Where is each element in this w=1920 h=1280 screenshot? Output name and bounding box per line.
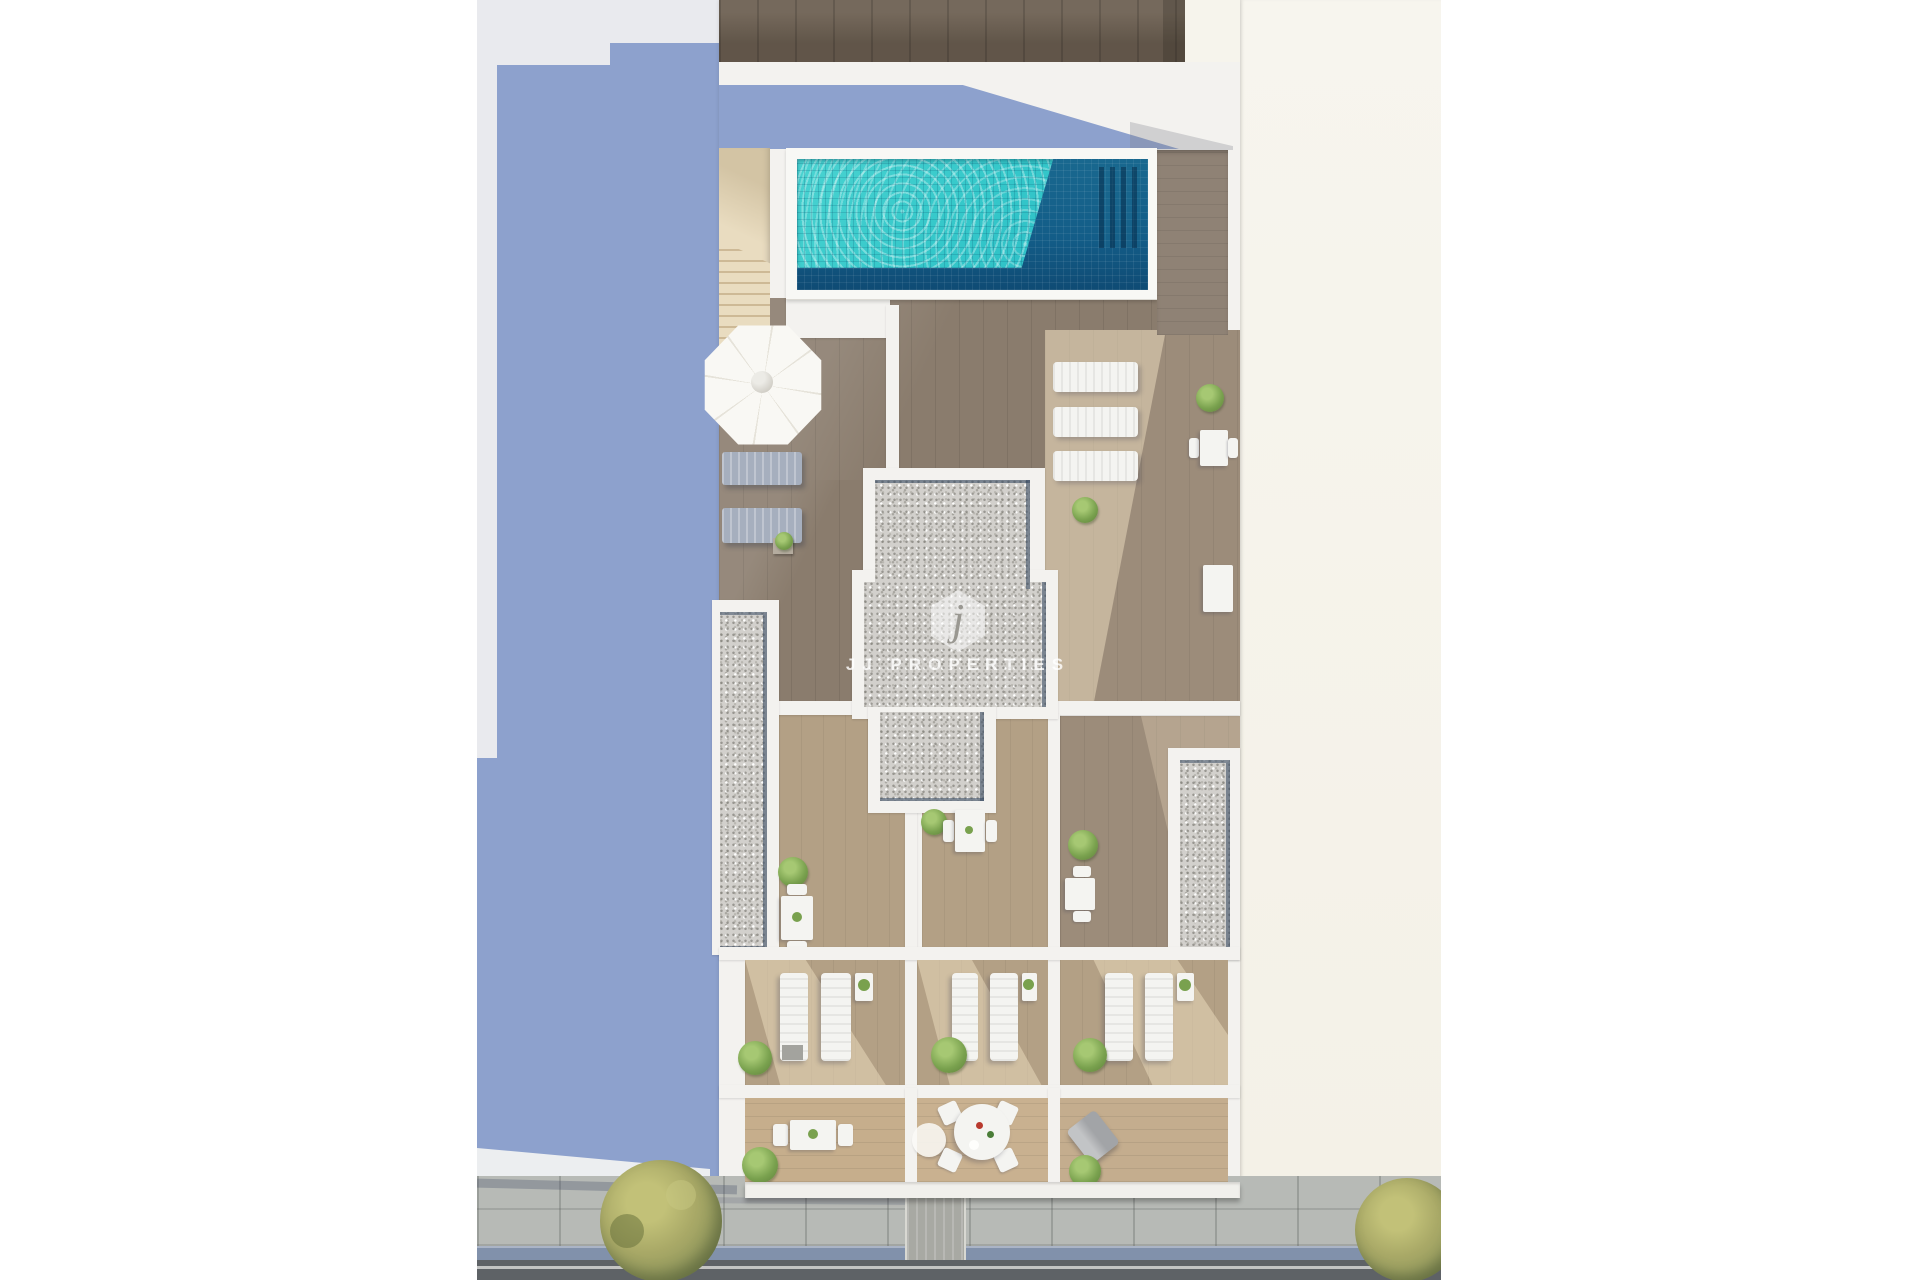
table-plant [858,979,870,991]
table-plant [987,1131,994,1138]
building-shadow [477,758,719,1180]
shrub [778,857,808,887]
table-plant [1023,979,1034,990]
shrub [738,1041,772,1075]
round-rug [912,1123,946,1157]
patio-chair [1189,438,1199,458]
shrub [775,532,793,550]
patio-chair [1073,866,1091,877]
watermark-title: JJ PROPERTIES [808,655,1108,675]
round-table [954,1104,1010,1160]
shrub [1196,384,1224,412]
top-edge-cream [1185,0,1240,62]
sun-lounger-white [1105,973,1133,1061]
roof-core-gravel [875,480,1030,589]
patio-table [1200,430,1228,466]
sun-lounger-white [990,973,1018,1061]
render-canvas: j JJ PROPERTIES REAL ESTATE [0,0,1920,1280]
pool-side-deck [1157,150,1228,335]
patio-chair [943,820,954,842]
glass-parapet-edge [875,480,1030,483]
sun-lounger-white [821,973,851,1061]
divider-wall [1048,1088,1060,1184]
shrub [1068,830,1098,860]
glass-parapet-edge [880,798,984,801]
parasol-pole [751,371,773,393]
shrub [931,1037,967,1073]
tree-foliage-clump [610,1214,644,1248]
pool-stairs [719,148,770,346]
sun-lounger-white [1053,362,1138,392]
patio-chair [773,1124,788,1146]
roof-core-gravel [880,712,984,801]
side-roof-gravel [720,612,767,949]
watermark-subtitle: REAL ESTATE [808,680,1108,690]
table-cup [969,1140,979,1150]
sun-lounger-white [1053,451,1138,481]
rooftop-wood-edge-shaded [1163,0,1185,62]
patio-chair [787,884,807,895]
pool-walkway [786,298,890,338]
rooftop-wood-edge [719,0,1185,62]
pool-deep-end [797,159,1148,290]
sun-lounger-white [1145,973,1173,1061]
balcony-fascia [745,1182,1240,1198]
patio-chair [1073,911,1091,922]
glass-parapet-edge [980,712,984,801]
pool-steps [1099,167,1141,248]
dining-table [1065,878,1095,910]
table-plant [808,1129,818,1139]
table-plate-red [976,1122,983,1129]
watermark-logo-letter: j [952,594,964,645]
patio-chair [838,1124,853,1146]
shrub [1073,1038,1107,1072]
aerial-render: j JJ PROPERTIES REAL ESTATE [477,0,1441,1280]
tree-foliage-clump [666,1180,696,1210]
sun-lounger-grey [722,452,802,485]
divider-wall [886,305,899,483]
shrub [1072,497,1098,523]
table-plant [965,826,973,834]
divider-wall [719,1085,1240,1098]
divider-wall [719,947,1240,960]
door-mat [782,1045,803,1060]
sun-lounger-white [1053,407,1138,437]
storage-bench [1203,565,1233,612]
neighbor-roof-right [1240,0,1441,1183]
swimming-pool [797,159,1148,290]
shrub [742,1147,778,1183]
table-plant [1179,979,1191,991]
street-tree [600,1160,722,1280]
divider-wall [905,800,917,1090]
patio-chair [1228,438,1238,458]
side-roof-gravel [1180,760,1230,954]
table-plant [792,912,802,922]
divider-wall [1048,714,1060,950]
glass-parapet-edge [1026,480,1030,589]
patio-chair [986,820,997,842]
